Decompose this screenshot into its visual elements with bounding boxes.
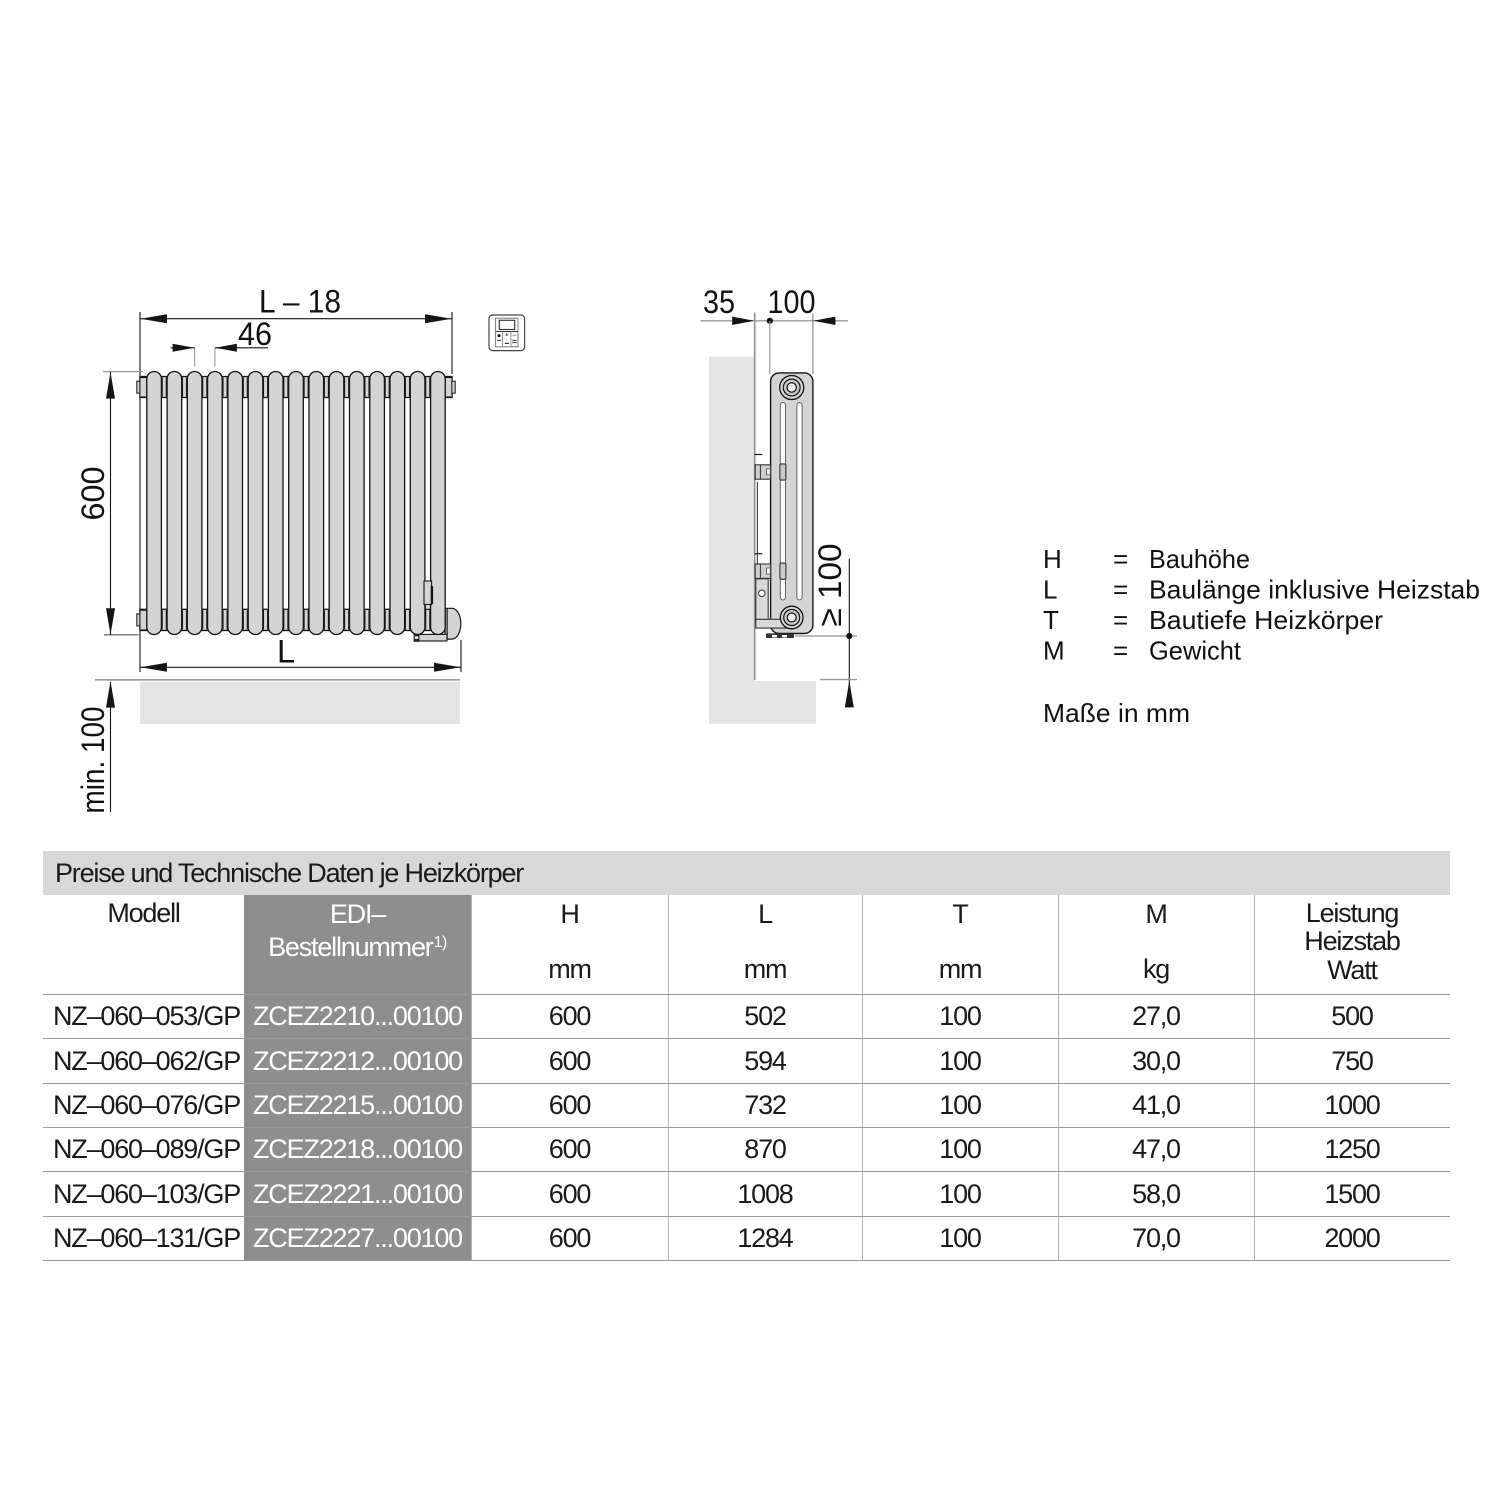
svg-text:100: 100 — [768, 284, 816, 320]
svg-text:Bautiefe Heizkörper: Bautiefe Heizkörper — [1149, 605, 1383, 635]
svg-text:≥ 100: ≥ 100 — [812, 544, 848, 627]
svg-text:Bauhöhe: Bauhöhe — [1149, 544, 1250, 574]
svg-text:L: L — [277, 633, 295, 669]
svg-text:T: T — [1043, 605, 1059, 635]
svg-text:min. 100: min. 100 — [75, 707, 111, 814]
svg-text:Baulänge inklusive Heizstab: Baulänge inklusive Heizstab — [1149, 575, 1480, 605]
svg-text:600: 600 — [75, 467, 111, 521]
svg-text:=: = — [1113, 636, 1128, 666]
svg-text:=: = — [1113, 544, 1128, 574]
svg-text:=: = — [1113, 575, 1128, 605]
svg-text:46: 46 — [238, 316, 272, 352]
svg-text:L: L — [1043, 575, 1057, 605]
svg-text:35: 35 — [703, 284, 735, 320]
svg-text:Maße in mm: Maße in mm — [1043, 698, 1190, 728]
svg-text:M: M — [1043, 636, 1065, 666]
svg-text:L – 18: L – 18 — [259, 284, 341, 320]
svg-text:H: H — [1043, 544, 1062, 574]
svg-text:Gewicht: Gewicht — [1149, 636, 1242, 666]
svg-text:=: = — [1113, 605, 1128, 635]
